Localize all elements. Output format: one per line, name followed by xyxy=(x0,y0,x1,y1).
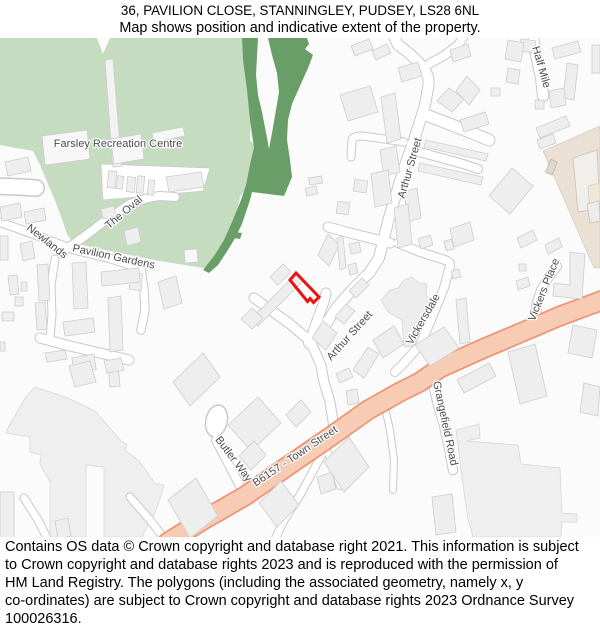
svg-text:Farsley Recreation Centre: Farsley Recreation Centre xyxy=(54,138,182,150)
